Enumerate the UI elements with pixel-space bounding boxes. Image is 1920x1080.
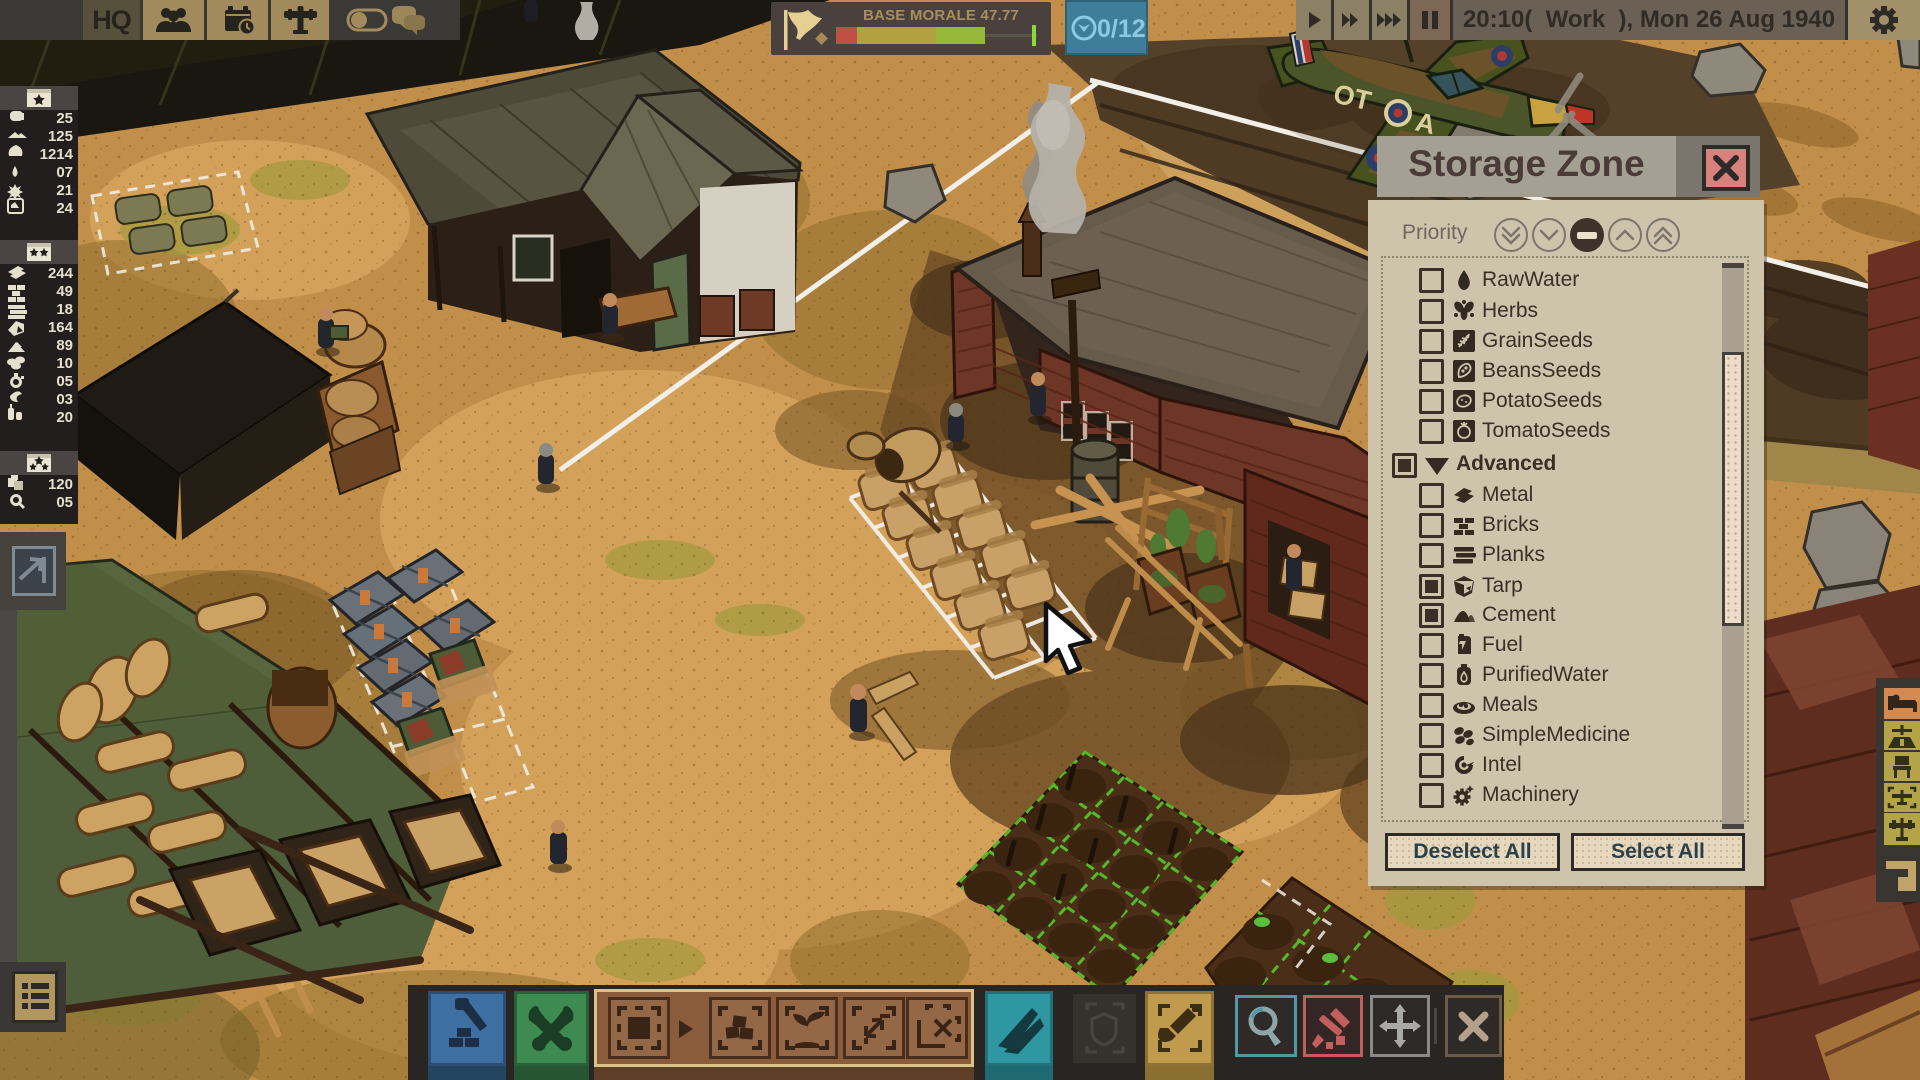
svg-text:05: 05	[56, 373, 73, 390]
svg-text:0/12: 0/12	[1097, 15, 1146, 43]
svg-text:24: 24	[56, 200, 73, 217]
svg-text:03: 03	[56, 391, 73, 408]
svg-text:07: 07	[56, 164, 73, 181]
svg-text:244: 244	[48, 265, 74, 282]
svg-text:10: 10	[56, 355, 73, 372]
svg-text:05: 05	[56, 494, 73, 511]
svg-text:120: 120	[48, 476, 73, 493]
svg-text:20: 20	[56, 409, 73, 426]
svg-text:125: 125	[48, 128, 73, 145]
svg-text:25: 25	[56, 110, 73, 127]
svg-text:21: 21	[56, 182, 73, 199]
svg-text:49: 49	[56, 283, 73, 300]
svg-text:18: 18	[56, 301, 73, 318]
svg-text:1214: 1214	[40, 146, 74, 163]
svg-text:89: 89	[56, 337, 73, 354]
svg-text:164: 164	[48, 319, 74, 336]
